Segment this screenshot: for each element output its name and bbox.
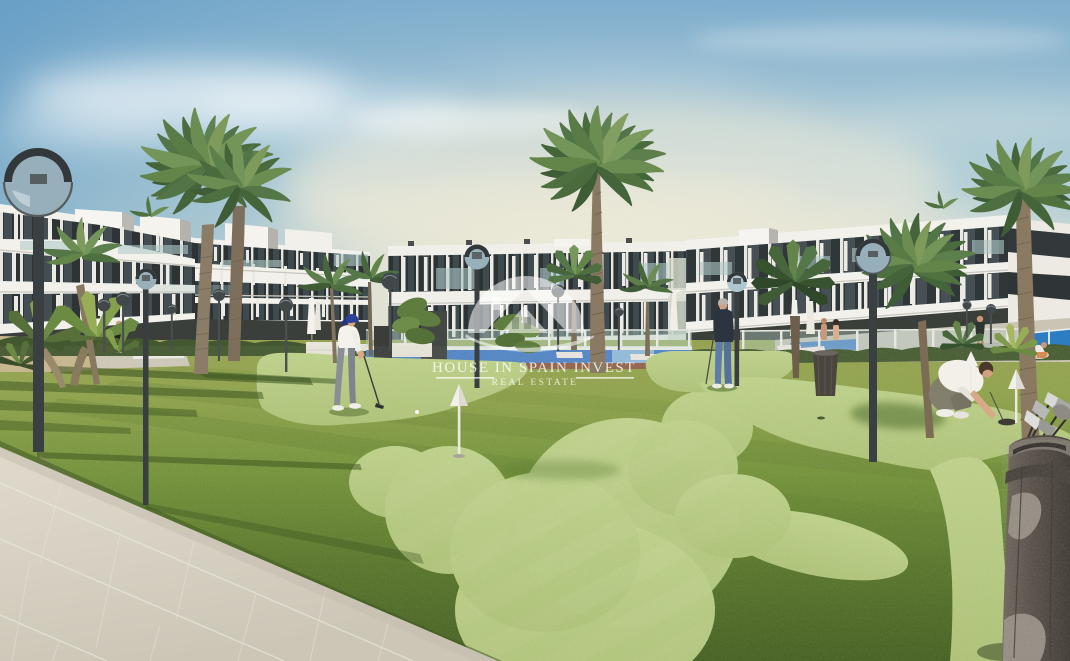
svg-text:HOUSE IN SPAIN INVEST: HOUSE IN SPAIN INVEST [432,360,636,376]
svg-text:REAL ESTATE: REAL ESTATE [492,378,579,388]
